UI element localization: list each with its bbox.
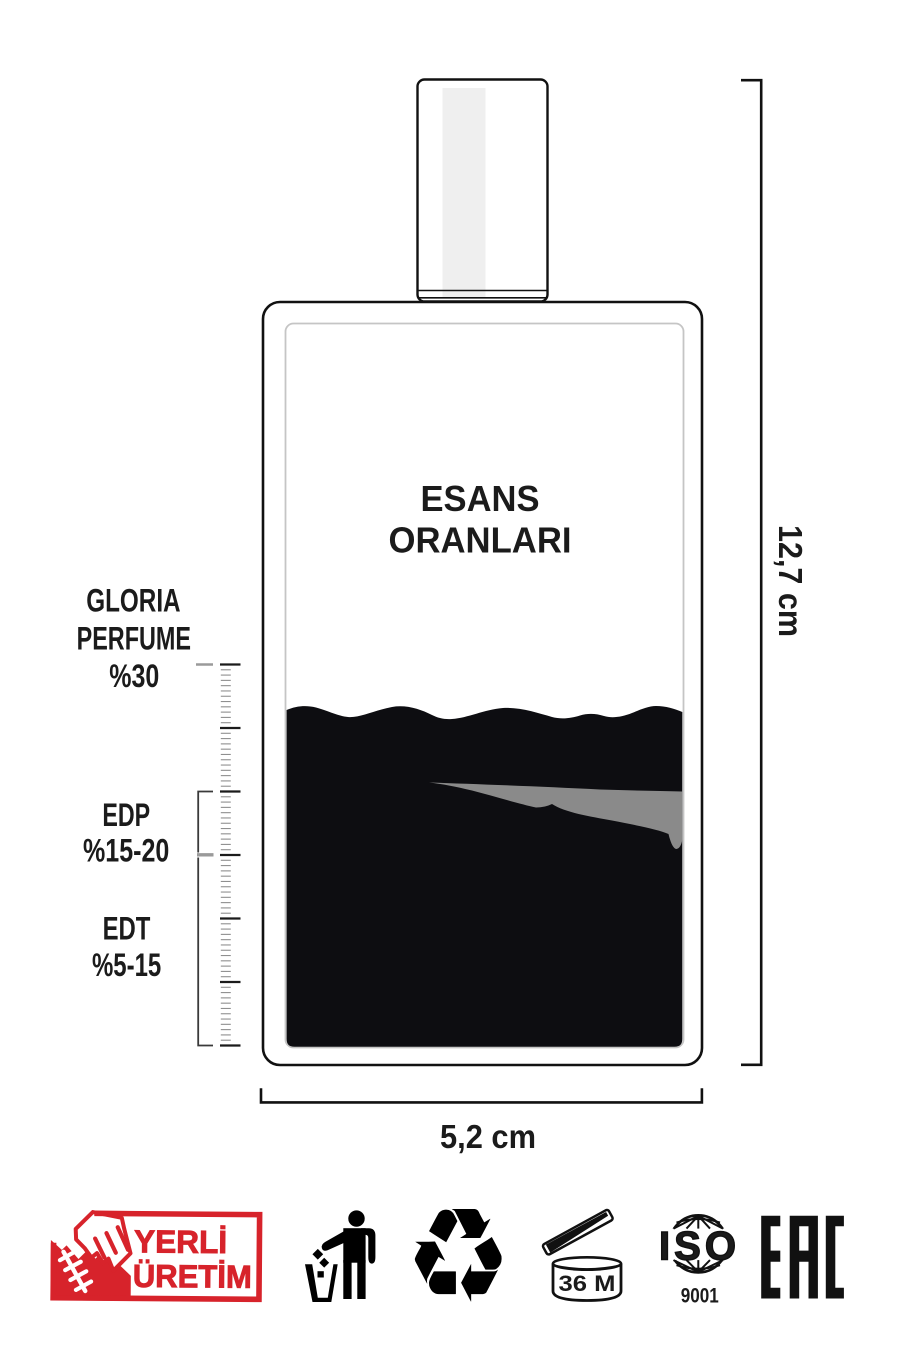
svg-text:%30: %30 bbox=[109, 658, 159, 694]
svg-text:%5-15: %5-15 bbox=[92, 947, 161, 983]
svg-text:12,7 cm: 12,7 cm bbox=[772, 525, 809, 637]
svg-text:ESANS: ESANS bbox=[421, 478, 540, 519]
svg-text:9001: 9001 bbox=[681, 1285, 719, 1308]
svg-text:YERLİ: YERLİ bbox=[134, 1223, 227, 1260]
svg-text:GLORIA: GLORIA bbox=[86, 583, 180, 619]
svg-text:5,2 cm: 5,2 cm bbox=[440, 1118, 536, 1155]
svg-text:EDP: EDP bbox=[102, 797, 150, 833]
svg-text:PERFUME: PERFUME bbox=[77, 620, 191, 656]
svg-text:ORANLARI: ORANLARI bbox=[389, 520, 572, 561]
svg-text:%15-20: %15-20 bbox=[83, 832, 169, 868]
svg-text:36 M: 36 M bbox=[559, 1271, 616, 1296]
svg-text:EDT: EDT bbox=[103, 910, 151, 946]
svg-text:ÜRETİM: ÜRETİM bbox=[133, 1258, 252, 1295]
